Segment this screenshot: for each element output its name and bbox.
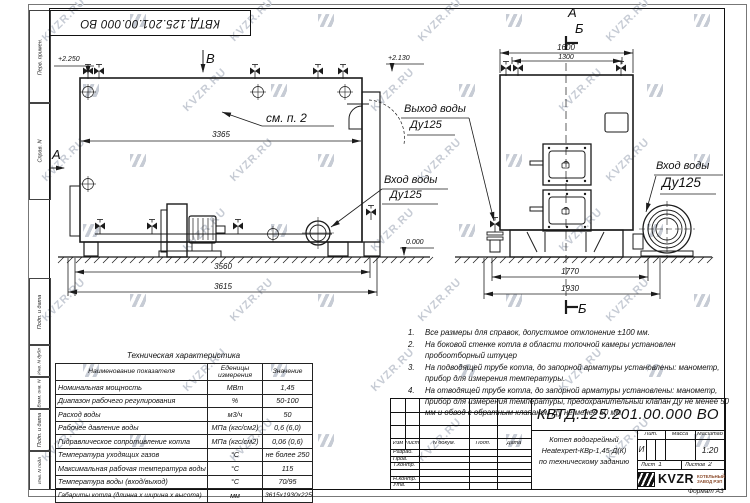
ground-hatch-mark bbox=[103, 257, 109, 263]
note-number: 3. bbox=[408, 362, 425, 384]
factory-logo: KVZR КОТЕЛЬНЫЙ ЗАВОД РЭП bbox=[637, 469, 725, 489]
spec-row: Диапазон рабочего регулирования%50-100 bbox=[56, 394, 313, 408]
ground-hatch-mark bbox=[346, 257, 352, 263]
ground-hatch-mark bbox=[608, 257, 614, 263]
spec-value-cell: 0,06 (0,6) bbox=[263, 435, 313, 449]
bolt-dot-icon bbox=[566, 193, 568, 195]
stamp-row-prov: Пров. bbox=[393, 457, 419, 463]
spec-row: Расход водым3/ч50 bbox=[56, 408, 313, 422]
valve-icon bbox=[250, 68, 255, 75]
spec-table-title: Техническая характеристика bbox=[55, 351, 312, 363]
bolt-dot-icon bbox=[548, 193, 550, 195]
note-item: 1.Все размеры для справок, допустимое от… bbox=[408, 327, 730, 338]
arrowhead-icon bbox=[484, 292, 493, 297]
valve-icon bbox=[621, 65, 626, 72]
ground-hatch-mark bbox=[518, 257, 524, 263]
spec-header-cell: Еденицы измерения bbox=[208, 364, 263, 381]
section-label-a-side: А bbox=[52, 148, 61, 161]
drawing-line bbox=[469, 118, 494, 221]
kvzr-bars-icon bbox=[637, 472, 655, 487]
stamp-lit-label: Лит. bbox=[637, 432, 665, 438]
arrowhead-icon bbox=[492, 275, 501, 280]
doc-name-line: Heatexpert-КВр-1,45-Д(К) bbox=[531, 446, 637, 457]
ground-hatch-mark bbox=[364, 257, 370, 263]
stamp-row-utv: Утв. bbox=[393, 483, 419, 489]
valve-icon bbox=[318, 68, 323, 75]
arrowhead-icon bbox=[81, 139, 90, 144]
kvzr-logo-subtext: КОТЕЛЬНЫЙ ЗАВОД РЭП bbox=[697, 474, 725, 485]
dimension-label-3560: 3560 bbox=[203, 263, 243, 271]
ground-hatch-mark bbox=[184, 257, 190, 263]
arrowhead-icon bbox=[352, 139, 361, 144]
ground-hatch-mark bbox=[653, 257, 659, 263]
bolt-dot-icon bbox=[584, 147, 586, 149]
spec-header-cell: Значение bbox=[263, 364, 313, 381]
valve-icon bbox=[518, 65, 523, 72]
arrowhead-icon bbox=[512, 59, 521, 64]
note-text: На боковой стенке котла в области топочн… bbox=[425, 339, 730, 361]
arrowhead-icon bbox=[75, 270, 84, 275]
ground-hatch-mark bbox=[94, 257, 100, 263]
spec-unit-cell: МПа (кгс/см2) bbox=[208, 421, 263, 435]
arrowhead-icon bbox=[639, 275, 648, 280]
stamp-lit-value: И bbox=[637, 446, 646, 454]
spec-name-cell: Температура воды (вход/выход) bbox=[56, 475, 208, 489]
ground-hatch-mark bbox=[617, 257, 623, 263]
ground-hatch-mark bbox=[536, 257, 542, 263]
arrowhead-icon bbox=[644, 203, 651, 213]
spec-value-cell: 50-100 bbox=[263, 394, 313, 408]
ground-hatch-mark bbox=[373, 257, 379, 263]
stamp-col-list: Лист bbox=[405, 441, 419, 447]
note-item: 2.На боковой стенке котла в области топо… bbox=[408, 339, 730, 361]
ground-hatch-mark bbox=[400, 257, 406, 263]
ground-hatch-mark bbox=[382, 257, 388, 263]
spec-header-row: Наименование показателя Еденицы измерени… bbox=[56, 364, 313, 381]
bolt-dot-icon bbox=[584, 193, 586, 195]
spec-row: Номинальная мощностьМВт1,45 bbox=[56, 381, 313, 395]
ground-hatch-mark bbox=[283, 257, 289, 263]
format-note: Формат А3 bbox=[688, 489, 724, 496]
valve-icon bbox=[366, 209, 371, 216]
callout-see-note-2: см. п. 2 bbox=[266, 112, 307, 124]
valve-icon bbox=[100, 223, 105, 230]
arrowhead-icon bbox=[361, 270, 370, 275]
ground-hatch-mark bbox=[166, 257, 172, 263]
elevation-label-stack: +2.130 bbox=[388, 55, 410, 62]
ground-hatch-mark bbox=[319, 257, 325, 263]
arrowhead-icon bbox=[500, 51, 509, 56]
inlet-label-side-1: Вход воды bbox=[384, 175, 437, 186]
bolt-dot-icon bbox=[584, 226, 586, 228]
ground-hatch-mark bbox=[626, 257, 632, 263]
valve-icon bbox=[238, 223, 243, 230]
ground-hatch-mark bbox=[139, 257, 145, 263]
valve-icon bbox=[147, 223, 152, 230]
elevation-label-top: +2.250 bbox=[58, 56, 80, 63]
stamp-scale-value: 1:20 bbox=[695, 446, 725, 455]
doc-name-line: Котел водогрейный bbox=[531, 435, 637, 446]
ground-hatch-mark bbox=[554, 257, 560, 263]
ground-hatch-mark bbox=[58, 257, 64, 263]
spec-value-cell: 50 bbox=[263, 408, 313, 422]
stamp-col-izm: Изм bbox=[391, 441, 405, 447]
valve-icon bbox=[501, 65, 506, 72]
ground-hatch-mark bbox=[572, 257, 578, 263]
side-view-drawing bbox=[58, 78, 430, 257]
doc-name-line: по техническому заданию bbox=[531, 457, 637, 468]
elevation-label-ground: 0.000 bbox=[406, 239, 424, 246]
spec-unit-cell: °С bbox=[208, 462, 263, 476]
bolt-dot-icon bbox=[548, 147, 550, 149]
note-number: 2. bbox=[408, 339, 425, 361]
ground-hatch-mark bbox=[698, 257, 704, 263]
stamp-row-razrab: Разраб. bbox=[393, 450, 419, 456]
ground-hatch-mark bbox=[355, 257, 361, 263]
ground-hatch-mark bbox=[581, 257, 587, 263]
valve-icon bbox=[490, 221, 495, 228]
ground-hatch-mark bbox=[310, 257, 316, 263]
ground-hatch-mark bbox=[301, 257, 307, 263]
logo-sub-line: ЗАВОД РЭП bbox=[697, 479, 725, 484]
spec-row: Рабочее давление водыМПа (кгс/см2)0,6 (6… bbox=[56, 421, 313, 435]
spec-name-cell: Диапазон рабочего регулирования bbox=[56, 394, 208, 408]
inlet-label-front-2: Ду125 bbox=[662, 176, 701, 190]
ground-hatch-mark bbox=[545, 257, 551, 263]
note-text: На подводящей трубе котла, до запорной а… bbox=[425, 362, 730, 384]
ground-hatch-mark bbox=[599, 257, 605, 263]
ground-hatch-mark bbox=[427, 257, 433, 263]
spec-name-cell: Расход воды bbox=[56, 408, 208, 422]
stamp-col-ndokum: N докум. bbox=[419, 441, 469, 447]
spec-unit-cell: °С bbox=[208, 475, 263, 489]
stamp-sheets-cell: Листов 2 bbox=[685, 462, 725, 469]
note-item: 3.На подводящей трубе котла, до запорной… bbox=[408, 362, 730, 384]
ground-hatch-mark bbox=[680, 257, 686, 263]
ground-hatch-mark bbox=[418, 257, 424, 263]
ground-hatch-mark bbox=[157, 257, 163, 263]
spec-row: Температура воды (вход/выход)°С70/95 bbox=[56, 475, 313, 489]
valve-icon bbox=[343, 68, 348, 75]
spec-unit-cell: °С bbox=[208, 448, 263, 462]
sheet-label: Лист bbox=[641, 462, 655, 468]
stamp-sheet-cell: Лист 1 bbox=[641, 462, 681, 469]
spec-value-cell: не более 250 bbox=[263, 448, 313, 462]
dimension-label-1300: 1300 bbox=[550, 54, 582, 61]
ground-hatch-mark bbox=[689, 257, 695, 263]
spec-unit-cell: % bbox=[208, 394, 263, 408]
bolt-dot-icon bbox=[566, 226, 568, 228]
ground-hatch-mark bbox=[247, 257, 253, 263]
valve-icon bbox=[313, 68, 318, 75]
stamp-col-podp: Подп. bbox=[469, 441, 497, 447]
title-block: Изм Лист N докум. Подп. Дата Разраб. Про… bbox=[390, 398, 726, 490]
spec-row: Температура уходящих газов°Сне более 250 bbox=[56, 448, 313, 462]
sheet-value: 1 bbox=[658, 462, 662, 468]
arrowhead-icon bbox=[402, 247, 407, 256]
view-label-a-front: А bbox=[568, 6, 577, 19]
stamp-row-nkontr: Н.контр. bbox=[393, 477, 419, 483]
spec-name-cell: Рабочее давление воды bbox=[56, 421, 208, 435]
valve-icon bbox=[94, 68, 99, 75]
ground-hatch-mark bbox=[76, 257, 82, 263]
spec-unit-cell: МПа (кгс/см2) bbox=[208, 435, 263, 449]
note-number: 1. bbox=[408, 327, 425, 338]
view-label-b-front: Б bbox=[575, 22, 583, 35]
ground-hatch-mark bbox=[85, 257, 91, 263]
dimension-label-3615: 3615 bbox=[203, 283, 243, 291]
spec-row: Максимальная рабочая температура воды°С1… bbox=[56, 462, 313, 476]
valve-icon bbox=[152, 223, 157, 230]
spec-name-cell: Номинальная мощность bbox=[56, 381, 208, 395]
inlet-label-side-2: Ду125 bbox=[390, 190, 422, 201]
drawing-sheet: { "watermark": { "text": "KVZR.RU" }, "s… bbox=[0, 0, 750, 500]
inlet-label-front-1: Вход воды bbox=[656, 161, 709, 172]
stamp-scale-label: Масштаб bbox=[695, 432, 725, 438]
arrowhead-icon bbox=[624, 51, 633, 56]
ground-hatch-mark bbox=[455, 257, 461, 263]
flipped-doc-number: КВТД.125.201.00.000 ВО bbox=[80, 17, 220, 29]
valve-icon bbox=[99, 68, 104, 75]
bolt-dot-icon bbox=[548, 180, 550, 182]
spec-name-cell: Температура уходящих газов bbox=[56, 448, 208, 462]
ground-hatch-mark bbox=[130, 257, 136, 263]
arrowhead-icon bbox=[68, 290, 77, 295]
spec-value-cell: 1,45 bbox=[263, 381, 313, 395]
spec-row: Гидравлическое сопротивление котлаМПа (к… bbox=[56, 435, 313, 449]
ground-hatch-mark bbox=[112, 257, 118, 263]
ground-hatch-mark bbox=[473, 257, 479, 263]
ground-hatch-mark bbox=[148, 257, 154, 263]
ground-hatch-mark bbox=[337, 257, 343, 263]
ground-hatch-mark bbox=[292, 257, 298, 263]
valve-icon bbox=[95, 223, 100, 230]
ground-hatch-mark bbox=[328, 257, 334, 263]
spec-unit-cell: м3/ч bbox=[208, 408, 263, 422]
ground-hatch-mark bbox=[482, 257, 488, 263]
ground-hatch-mark bbox=[590, 257, 596, 263]
ground-hatch-mark bbox=[391, 257, 397, 263]
ground-hatch-mark bbox=[175, 257, 181, 263]
stamp-doc-number: КВТД.125.201.00.000 ВО bbox=[531, 407, 725, 422]
ground-hatch-mark bbox=[500, 257, 506, 263]
section-label-b-bottom: Б bbox=[578, 302, 586, 315]
valve-icon bbox=[506, 65, 511, 72]
ground-hatch-mark bbox=[409, 257, 415, 263]
spec-unit-cell: МВт bbox=[208, 381, 263, 395]
valve-icon bbox=[255, 68, 260, 75]
dimension-label-3365: 3365 bbox=[201, 131, 241, 139]
arrowhead-icon bbox=[201, 64, 206, 73]
dimension-label-1770: 1770 bbox=[552, 268, 588, 276]
stamp-col-data: Дата bbox=[497, 441, 531, 447]
bolt-dot-icon bbox=[566, 180, 568, 182]
kvzr-logo-text: KVZR bbox=[658, 472, 694, 486]
valve-icon bbox=[513, 65, 518, 72]
ground-hatch-mark bbox=[464, 257, 470, 263]
ground-hatch-mark bbox=[265, 257, 271, 263]
outlet-label-1: Выход воды bbox=[404, 104, 466, 115]
spec-value-cell: 115 bbox=[263, 462, 313, 476]
spec-table: Техническая характеристика Наименование … bbox=[55, 351, 312, 503]
valve-icon bbox=[233, 223, 238, 230]
dimension-label-1930: 1930 bbox=[552, 285, 588, 293]
ground-hatch-mark bbox=[256, 257, 262, 263]
ground-hatch-mark bbox=[707, 257, 713, 263]
arrowhead-icon bbox=[651, 292, 660, 297]
flipped-doc-number-box: КВТД.125.201.00.000 ВО bbox=[49, 10, 251, 36]
stamp-row-tkontr: Т.контр. bbox=[393, 463, 419, 469]
spec-table-grid: Наименование показателя Еденицы измерени… bbox=[55, 363, 313, 503]
ground-hatch-mark bbox=[121, 257, 127, 263]
stamp-doc-name: Котел водогрейный Heatexpert-КВр-1,45-Д(… bbox=[531, 435, 637, 468]
valve-icon bbox=[495, 221, 500, 228]
bolt-dot-icon bbox=[584, 180, 586, 182]
ground-hatch-mark bbox=[635, 257, 641, 263]
dimension-label-1600: 1600 bbox=[548, 44, 584, 52]
spec-value-cell: 70/95 bbox=[263, 475, 313, 489]
spec-name-cell: Гидравлическое сопротивление котла bbox=[56, 435, 208, 449]
valve-icon bbox=[338, 68, 343, 75]
ground-hatch-mark bbox=[274, 257, 280, 263]
ground-hatch-mark bbox=[509, 257, 515, 263]
valve-icon bbox=[616, 65, 621, 72]
arrowhead-icon bbox=[390, 63, 395, 72]
bolt-dot-icon bbox=[566, 147, 568, 149]
spec-value-cell: 0,6 (6,0) bbox=[263, 421, 313, 435]
note-text: Все размеры для справок, допустимое откл… bbox=[425, 327, 730, 338]
spec-name-cell: Максимальная рабочая температура воды bbox=[56, 462, 208, 476]
drawing-line bbox=[331, 189, 382, 227]
bolt-dot-icon bbox=[548, 226, 550, 228]
outlet-label-2: Ду125 bbox=[410, 120, 442, 131]
arrowhead-icon bbox=[221, 110, 231, 117]
arrowhead-icon bbox=[368, 290, 377, 295]
ground-hatch-mark bbox=[527, 257, 533, 263]
spec-header-cell: Наименование показателя bbox=[56, 364, 208, 381]
arrowhead-icon bbox=[56, 166, 65, 171]
valve-icon bbox=[371, 209, 376, 216]
view-label-v: В bbox=[206, 52, 215, 65]
ground-hatch-mark bbox=[662, 257, 668, 263]
ground-hatch-mark bbox=[671, 257, 677, 263]
sheets-label: Листов bbox=[685, 462, 705, 468]
ground-hatch-mark bbox=[193, 257, 199, 263]
ground-hatch-mark bbox=[644, 257, 650, 263]
stamp-mass-label: Масса bbox=[665, 432, 695, 438]
sheets-value: 2 bbox=[708, 462, 712, 468]
